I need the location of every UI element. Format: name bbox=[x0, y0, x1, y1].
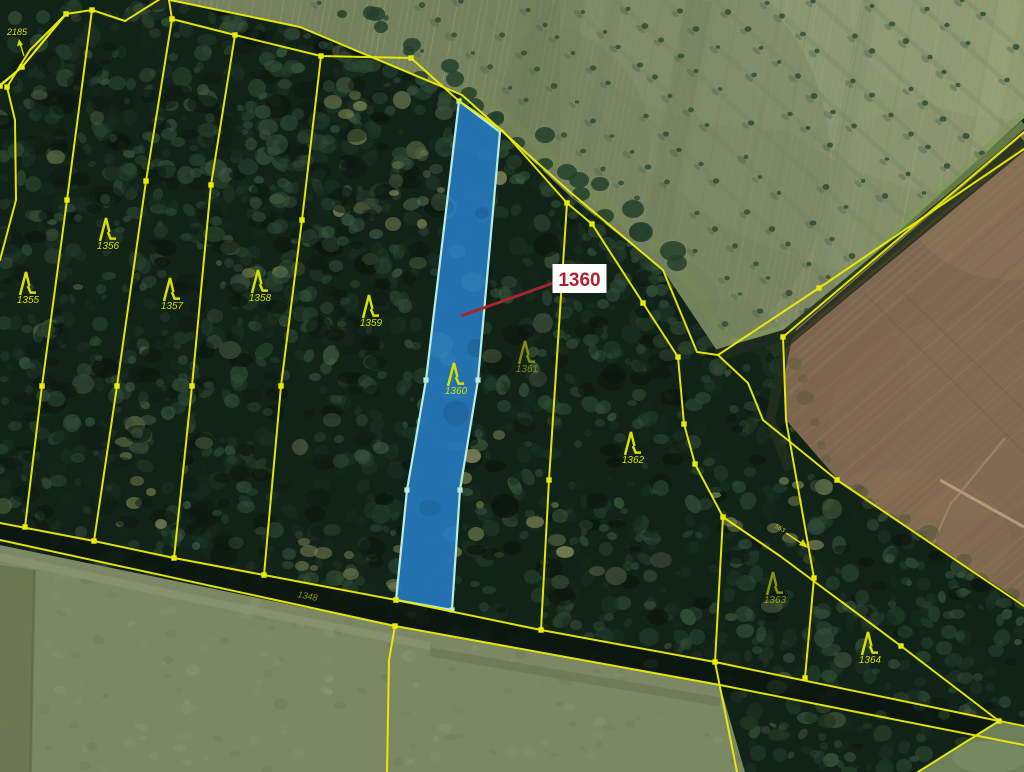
svg-text:1355: 1355 bbox=[17, 295, 40, 306]
svg-text:1358: 1358 bbox=[249, 293, 272, 304]
svg-text:1361: 1361 bbox=[516, 364, 538, 375]
svg-text:2185: 2185 bbox=[6, 27, 28, 37]
svg-text:1357: 1357 bbox=[161, 301, 184, 312]
svg-text:1360: 1360 bbox=[445, 386, 468, 397]
svg-text:1356: 1356 bbox=[97, 241, 120, 252]
svg-text:1359: 1359 bbox=[360, 318, 383, 329]
svg-text:1363: 1363 bbox=[764, 595, 787, 606]
svg-text:1364: 1364 bbox=[859, 655, 882, 666]
svg-text:1360: 1360 bbox=[558, 270, 600, 291]
svg-text:1362: 1362 bbox=[622, 455, 645, 466]
